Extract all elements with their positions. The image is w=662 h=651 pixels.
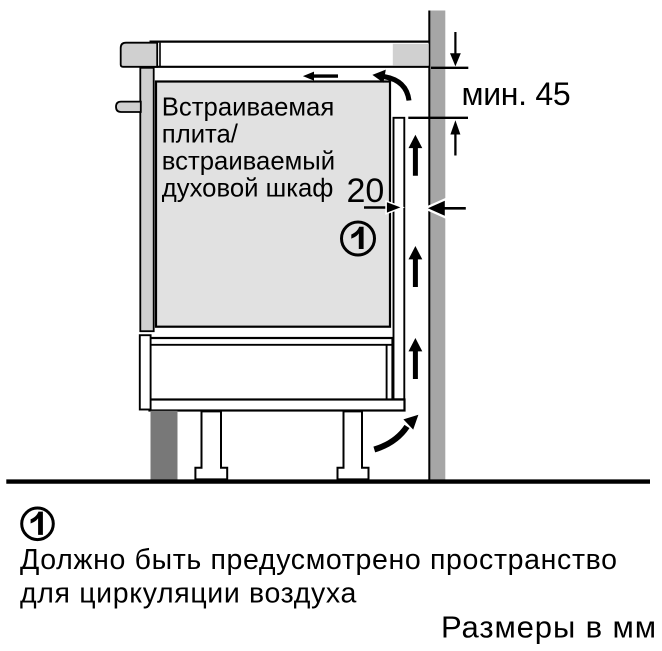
- svg-text:Должно быть предусмотрено прос: Должно быть предусмотрено пространство: [20, 544, 618, 576]
- svg-text:мин. 45: мин. 45: [462, 76, 571, 112]
- svg-text:для циркуляции воздуха: для циркуляции воздуха: [20, 577, 357, 609]
- svg-text:Размеры в мм: Размеры в мм: [441, 610, 657, 645]
- svg-text:встраиваемый: встраиваемый: [162, 148, 335, 176]
- svg-text:Встраиваемая: Встраиваемая: [162, 93, 334, 121]
- svg-text:20: 20: [347, 172, 385, 210]
- svg-text:плита/: плита/: [162, 121, 239, 149]
- svg-text:духовой шкаф: духовой шкаф: [162, 175, 334, 203]
